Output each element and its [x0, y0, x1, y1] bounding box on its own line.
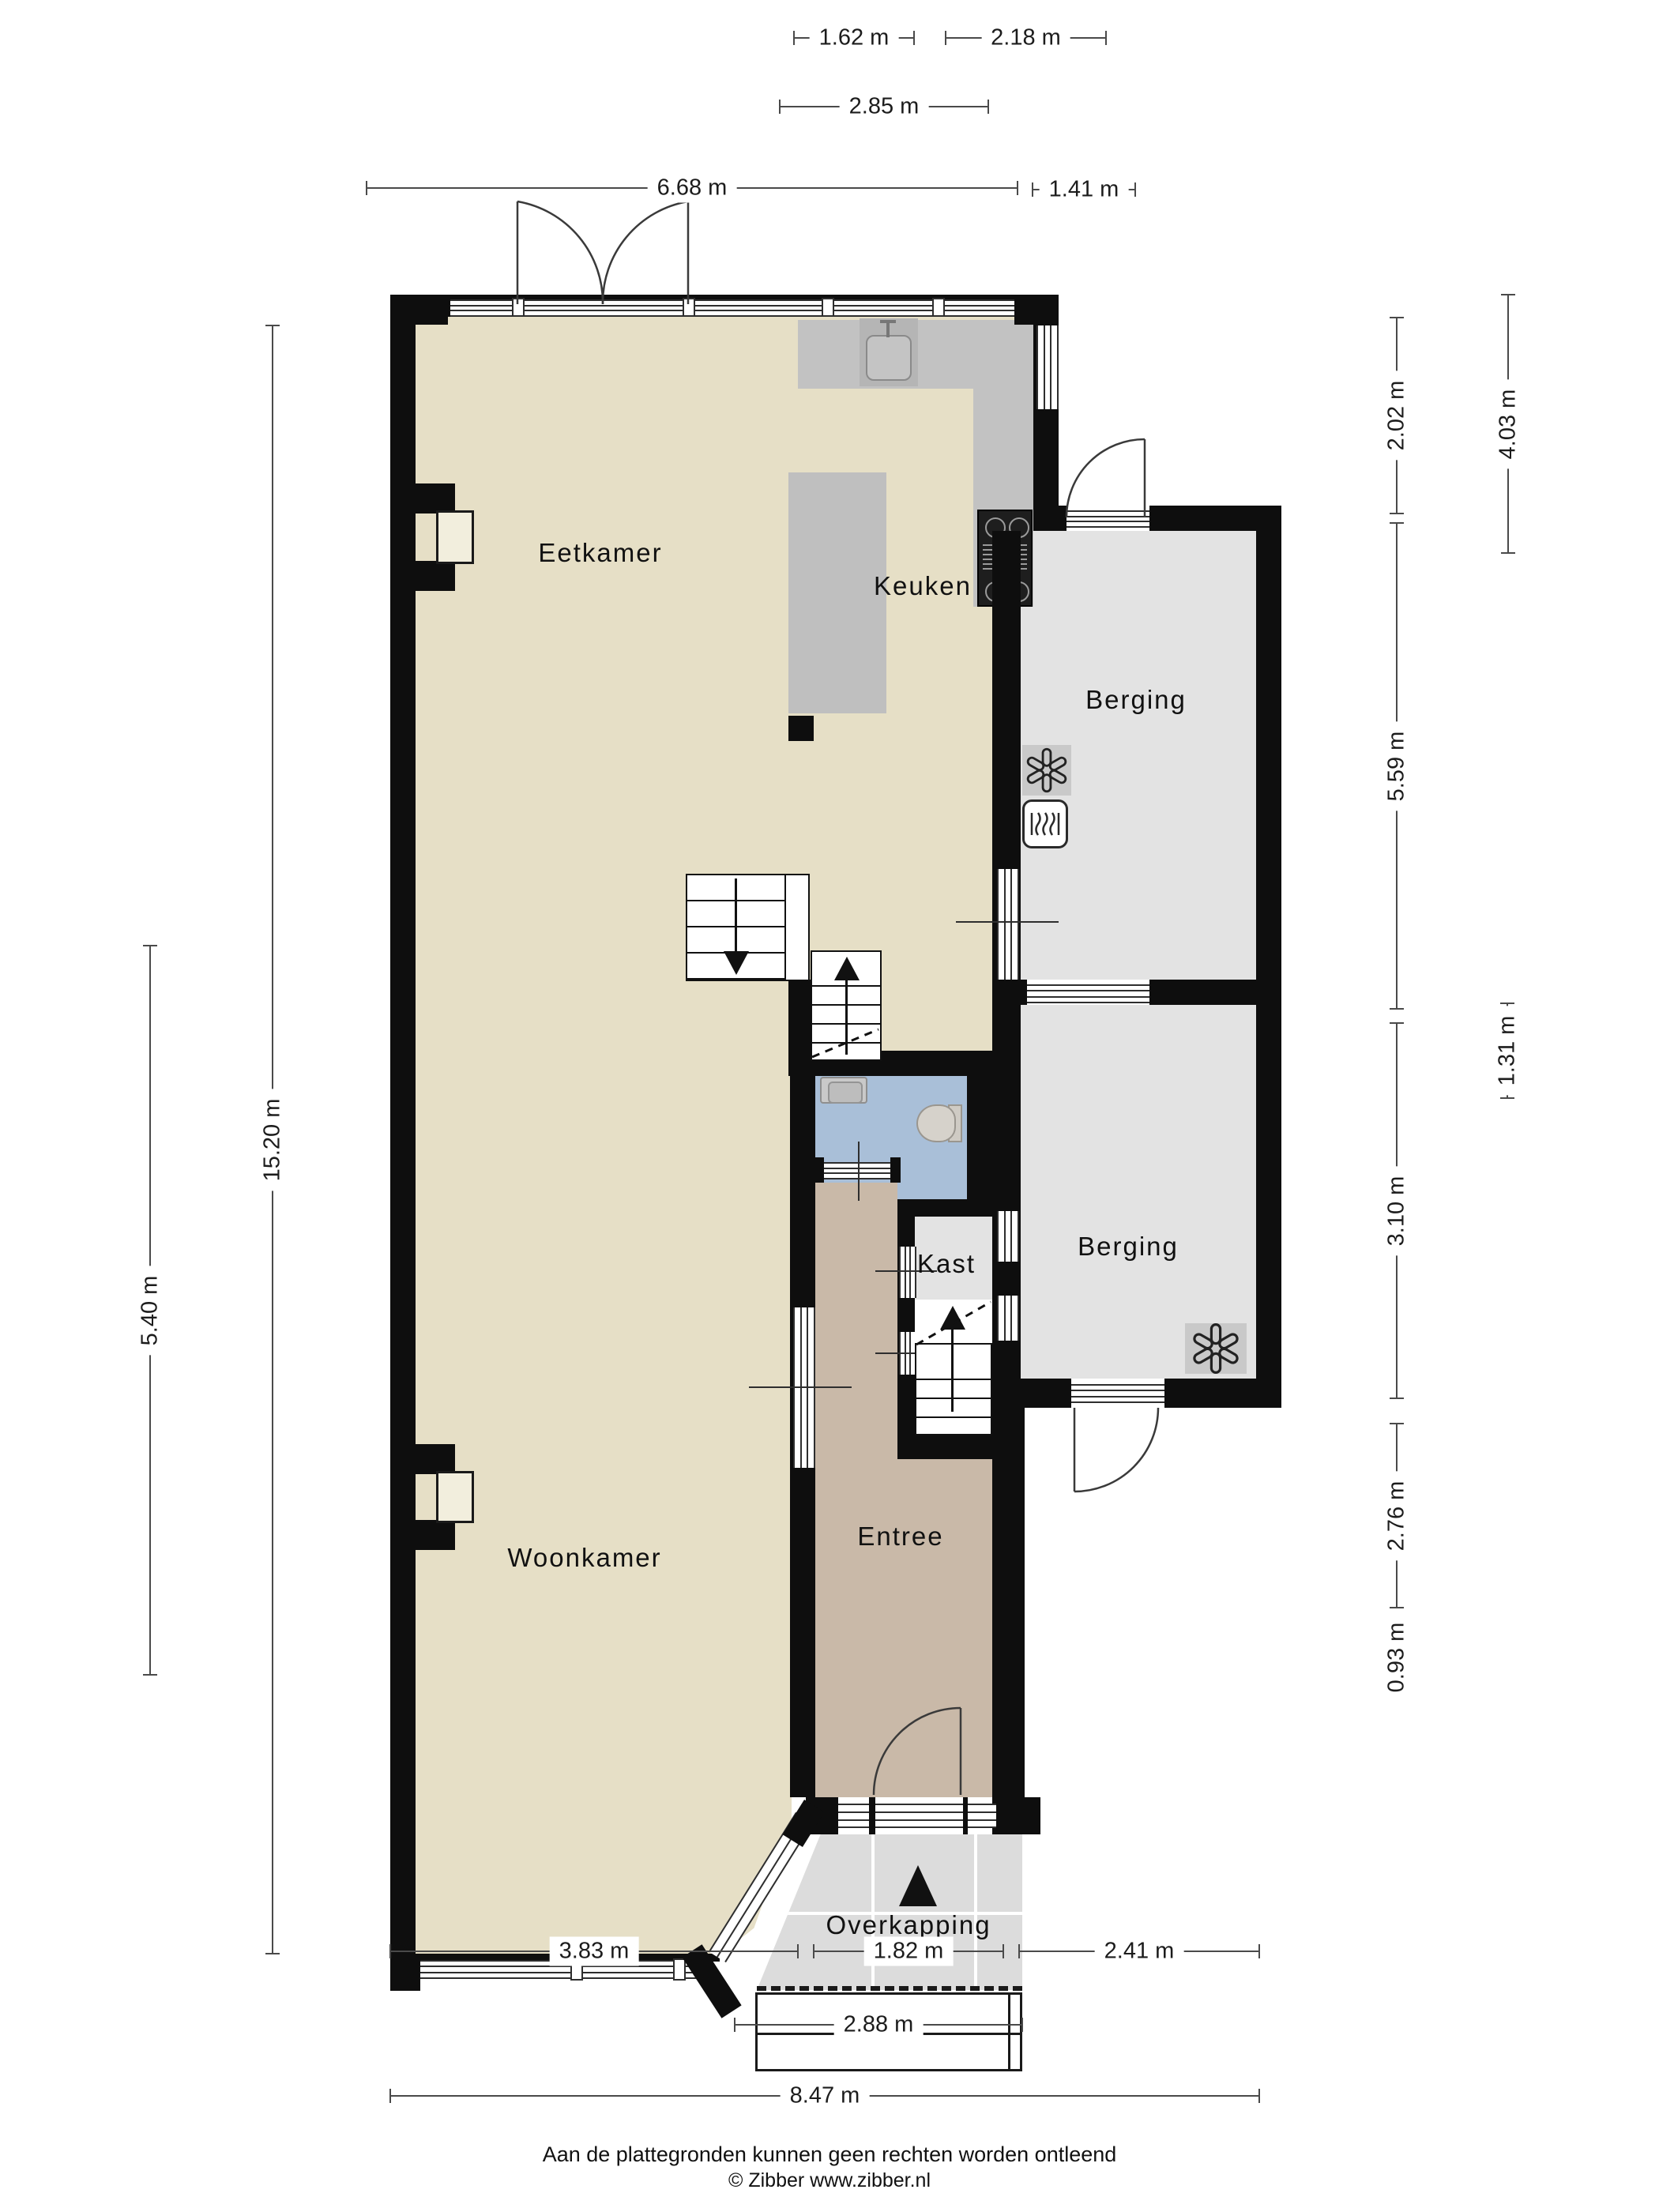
dimension-label: 5.40 m — [136, 1266, 165, 1355]
dimension-tick — [1021, 2018, 1023, 2032]
window-entree-kast-1 — [899, 1247, 916, 1298]
dimension-label: 2.02 m — [1382, 371, 1412, 461]
dimension-tick — [1134, 182, 1136, 197]
wall-berging2-south-east — [1164, 1379, 1281, 1408]
dimension-tick — [1390, 317, 1404, 318]
label-berging-2: Berging — [1078, 1232, 1179, 1262]
label-eetkamer: Eetkamer — [538, 538, 662, 568]
wall-bathroom-south-east — [890, 1157, 901, 1183]
dimension-tick — [987, 100, 989, 114]
floor-main-mid — [416, 531, 995, 1076]
wall-bathroom-south-west — [815, 1157, 824, 1183]
dimension-tick — [1390, 522, 1404, 524]
dimension-tick — [1390, 1423, 1404, 1424]
dimension-tick — [143, 1674, 157, 1676]
dimension-tick — [797, 1944, 799, 1958]
dimension-tick — [1501, 294, 1515, 295]
dimension-tick — [945, 31, 946, 45]
door-threshold-berging-1 — [1066, 510, 1149, 528]
dimension-tick — [1501, 552, 1515, 554]
window-center-tick — [749, 1386, 852, 1388]
wall-annex-north-west — [1033, 506, 1066, 531]
floorplan-canvas: Eetkamer Keuken Berging Berging Kast Woo… — [0, 0, 1659, 2212]
dimension-tick — [813, 1944, 814, 1958]
north-arrow-icon — [899, 1865, 937, 1906]
ventilation-fan-icon — [1185, 1323, 1247, 1374]
dimension-tick — [265, 325, 280, 326]
dimension-label: 6.68 m — [648, 174, 737, 203]
stairs-up-entree-icon — [915, 1300, 992, 1435]
floor-entree-lower — [815, 1459, 995, 1797]
dimension-label: 2.88 m — [834, 2011, 924, 2040]
dimension-tick — [1032, 182, 1033, 197]
window-top-facade — [450, 299, 1014, 317]
label-berging-1: Berging — [1085, 685, 1187, 715]
window-kast-berging-2 — [997, 1296, 1019, 1341]
floor-entree-upper — [815, 1183, 897, 1459]
door-center-tick — [858, 1142, 860, 1201]
dimension-tick — [1390, 1022, 1404, 1024]
wall-berging2-south-west — [992, 1379, 1071, 1408]
wall-annex-east — [1256, 506, 1281, 1408]
label-entree: Entree — [857, 1522, 943, 1552]
dimension-tick — [265, 1953, 280, 1954]
toilet-icon — [916, 1103, 957, 1141]
washbasin-icon — [820, 1077, 867, 1104]
window-mullion — [512, 298, 525, 317]
front-door-threshold — [875, 1804, 963, 1828]
door-threshold-berging-2 — [1071, 1384, 1164, 1403]
dimension-tick — [366, 181, 367, 195]
dimension-tick — [1500, 1003, 1514, 1004]
window-mullion — [683, 298, 695, 317]
dimension-tick — [1105, 31, 1107, 45]
dimension-tick — [143, 945, 157, 946]
dimension-label: 1.62 m — [810, 24, 899, 53]
ventilation-fan-icon — [1022, 745, 1071, 796]
label-kast: Kast — [917, 1249, 976, 1279]
dimension-tick — [1500, 1097, 1514, 1099]
wall-front-2 — [869, 1797, 875, 1834]
dimension-label: 4.03 m — [1494, 379, 1523, 468]
boiler-icon — [1022, 799, 1068, 848]
dimension-tick — [793, 31, 795, 45]
front-sidelight-east — [968, 1804, 996, 1828]
dimension-tick — [1390, 1398, 1404, 1399]
window-keuken-berging — [997, 869, 1019, 980]
dimension-label: 2.41 m — [1095, 1937, 1184, 1966]
dimension-tick — [1003, 1944, 1004, 1958]
chimney-breast-bottom — [416, 1520, 455, 1550]
dimension-label: 3.10 m — [1382, 1166, 1412, 1255]
footer-disclaimer: Aan de plattegronden kunnen geen rechten… — [0, 2142, 1659, 2167]
chimney-breast-top — [416, 1444, 455, 1474]
dimension-label: 5.59 m — [1382, 721, 1412, 811]
wall-southeast-stub — [992, 1408, 1025, 1834]
front-sidelight-west — [838, 1804, 869, 1828]
dimension-tick — [1258, 2089, 1260, 2103]
dimension-label: 1.31 m — [1493, 1006, 1522, 1096]
chimney-breast-bottom — [416, 561, 455, 591]
label-woonkamer: Woonkamer — [507, 1543, 661, 1573]
dimension-label: 0.93 m — [1382, 1612, 1412, 1702]
wall-island-pillar — [788, 716, 814, 741]
window-kitchen-east — [1036, 325, 1059, 409]
footer-credit: © Zibber www.zibber.nl — [0, 2169, 1659, 2192]
dimension-tick — [389, 2089, 391, 2103]
dimension-tick — [1018, 1944, 1020, 1958]
dimension-tick — [1390, 1607, 1404, 1608]
dimension-tick — [389, 1944, 391, 1958]
label-overkapping: Overkapping — [826, 1910, 991, 1940]
dimension-tick — [779, 100, 781, 114]
wall-berging-divider-west — [992, 980, 1027, 1005]
dimension-label: 8.47 m — [781, 2082, 870, 2111]
label-keuken: Keuken — [874, 571, 972, 601]
dimension-tick — [1017, 181, 1018, 195]
dimension-label: 1.82 m — [864, 1937, 954, 1966]
dimension-tick — [734, 2018, 735, 2032]
door-opening-bathroom — [824, 1162, 890, 1179]
wall-kast-west — [897, 1199, 915, 1459]
dimension-label: 2.18 m — [981, 24, 1070, 53]
dimension-label: 2.85 m — [840, 92, 929, 122]
window-berging-divider — [1027, 984, 1149, 1003]
dimension-label: 3.83 m — [550, 1937, 639, 1966]
window-mullion — [673, 1958, 686, 1981]
window-mullion — [932, 298, 945, 317]
dimension-label: 1.41 m — [1040, 175, 1129, 205]
dimension-tick — [1390, 513, 1404, 514]
wall-berging-divider-east — [1149, 980, 1256, 1005]
dimension-tick — [913, 31, 915, 45]
chimney-niche — [436, 510, 474, 564]
wall-left — [390, 317, 416, 1979]
window-mullion — [822, 298, 834, 317]
dimension-label: 2.76 m — [1382, 1471, 1412, 1560]
stairs-down-icon — [686, 874, 810, 981]
chimney-niche — [436, 1471, 474, 1523]
chimney-breast-top — [416, 483, 455, 513]
wall-bathroom-east — [967, 1076, 992, 1199]
stairs-up-icon — [811, 950, 882, 1061]
dimension-tick — [1258, 1944, 1260, 1958]
window-kast-berging-1 — [997, 1211, 1019, 1262]
dimension-tick — [1390, 1008, 1404, 1010]
kitchen-sink-icon — [860, 318, 918, 386]
wall-stairs-south — [897, 1434, 995, 1459]
dimension-label: 15.20 m — [258, 1089, 288, 1191]
wall-front-4 — [996, 1797, 1040, 1834]
kitchen-island — [788, 472, 886, 713]
window-center-tick — [956, 921, 1059, 923]
overkapping-dashed-edge — [757, 1986, 1022, 1991]
